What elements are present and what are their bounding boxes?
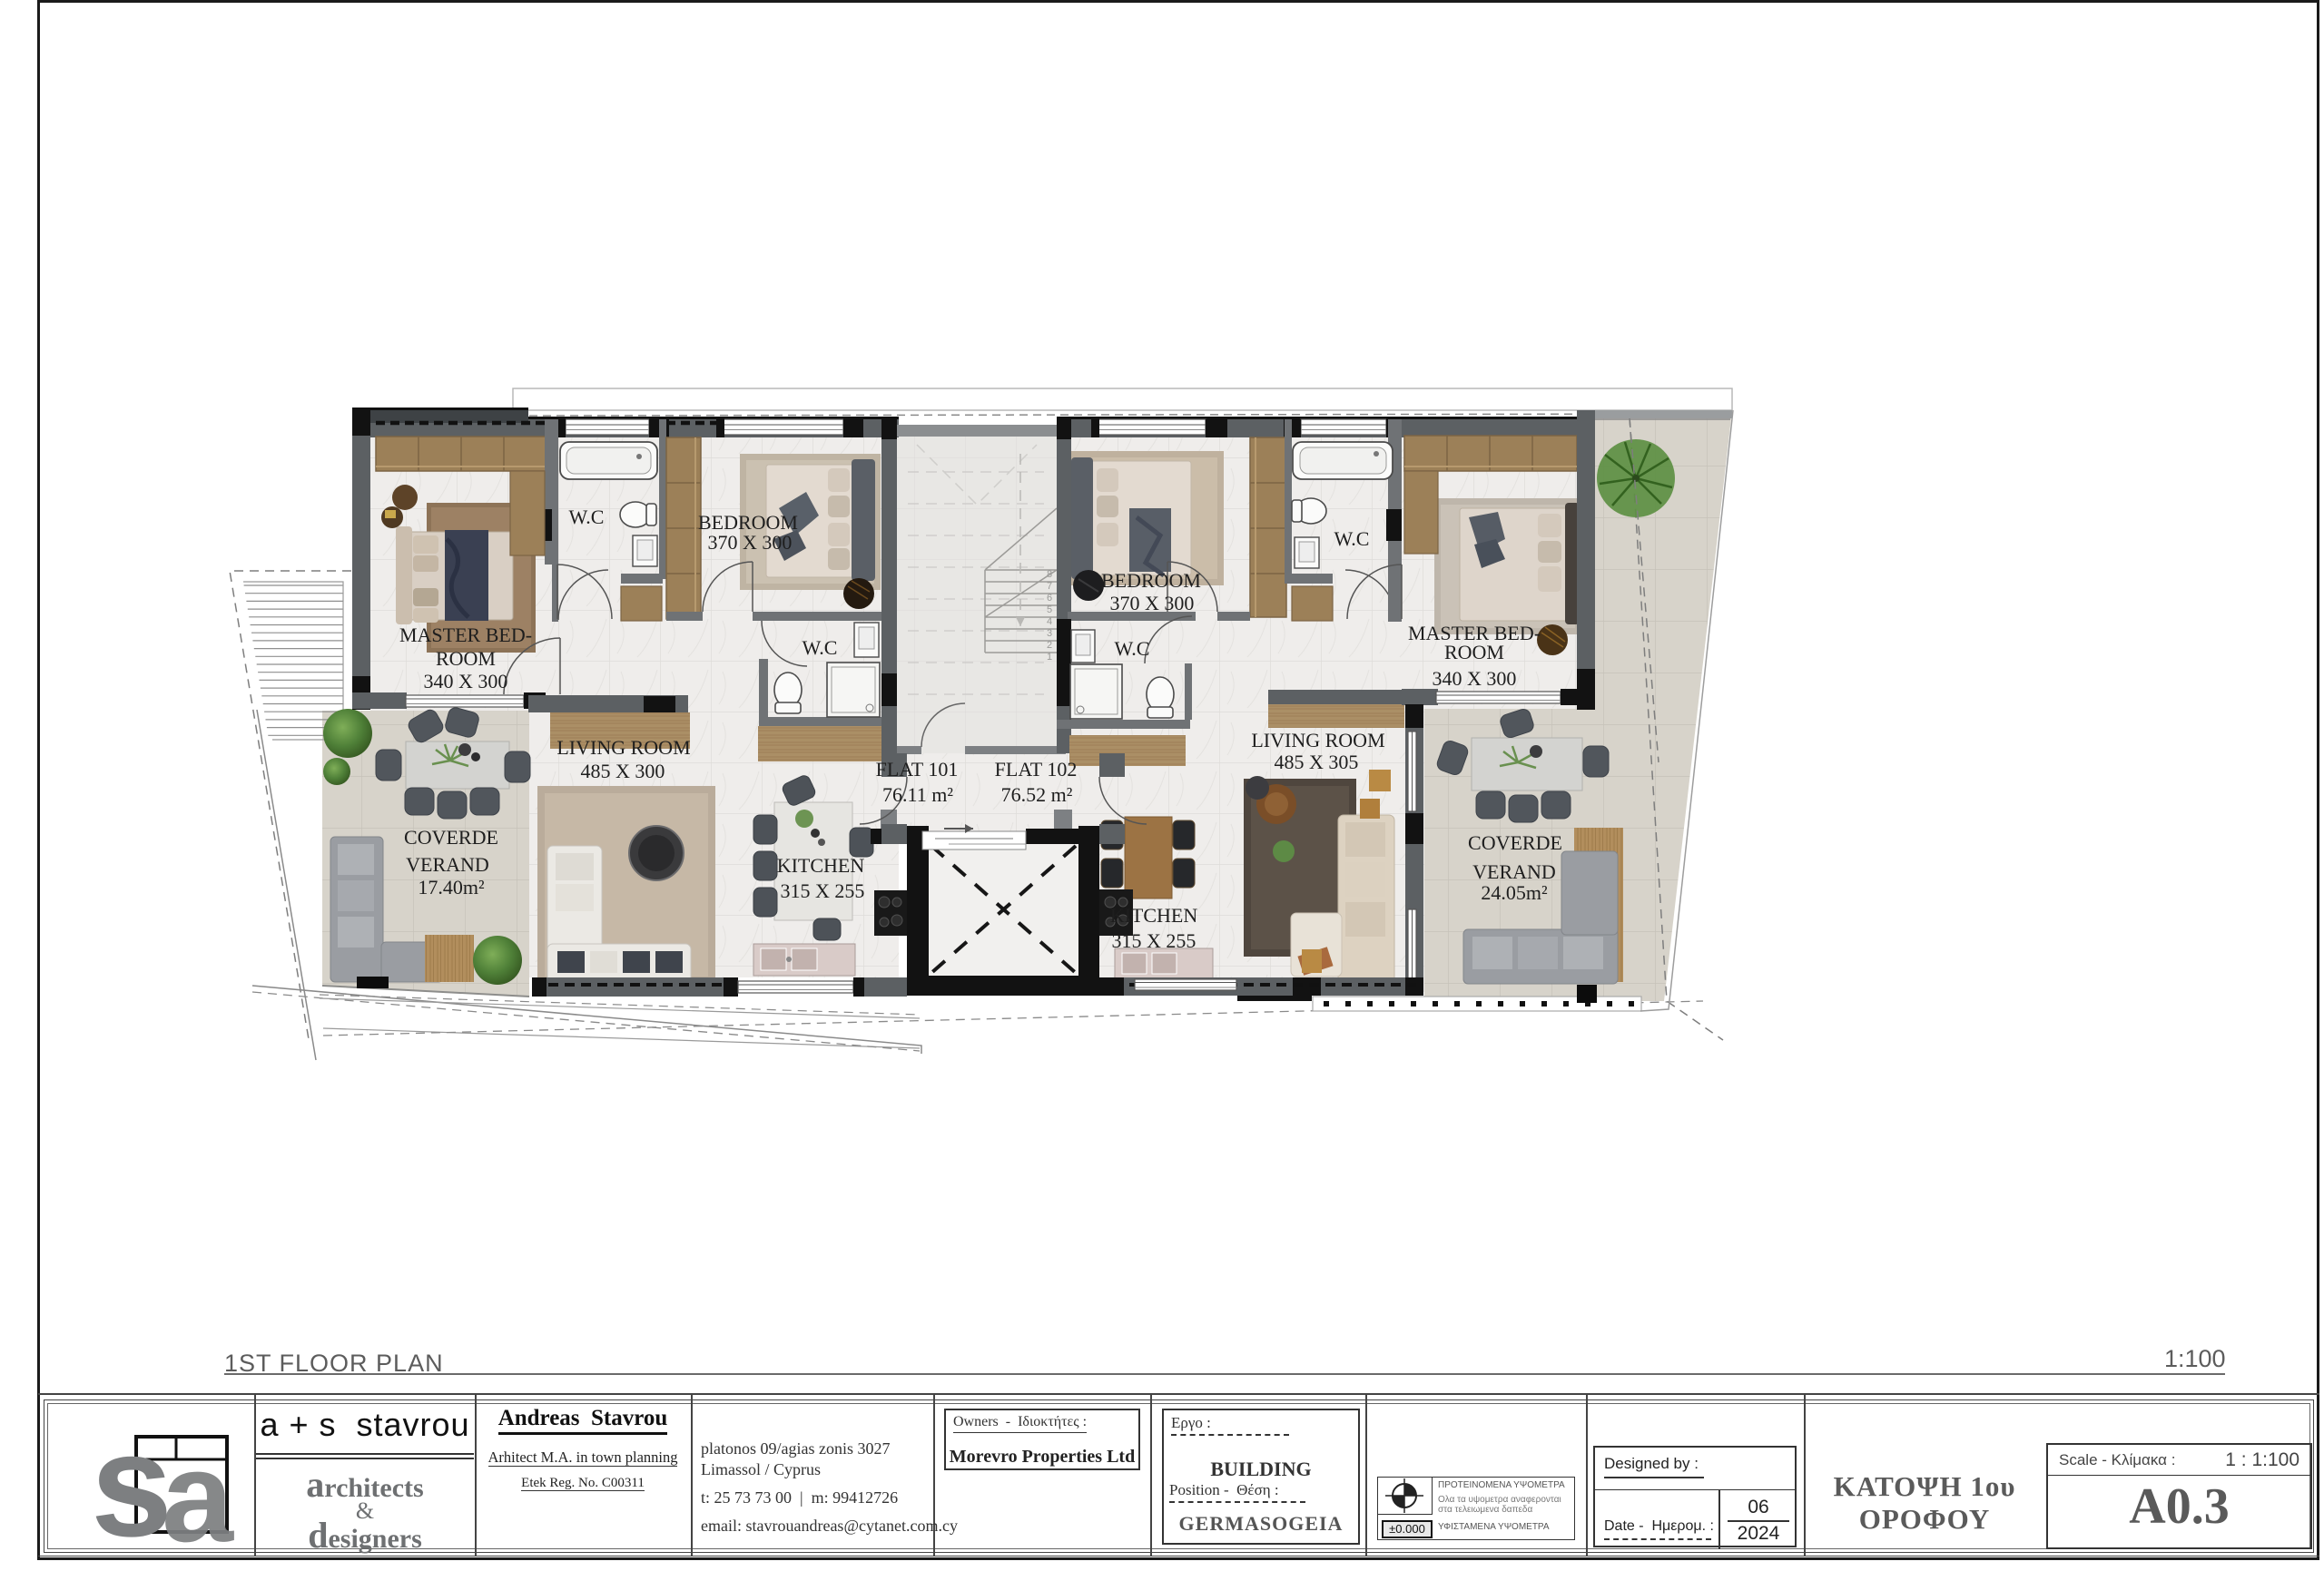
svg-text:a: a: [162, 1425, 234, 1552]
svg-text:s: s: [91, 1403, 172, 1552]
